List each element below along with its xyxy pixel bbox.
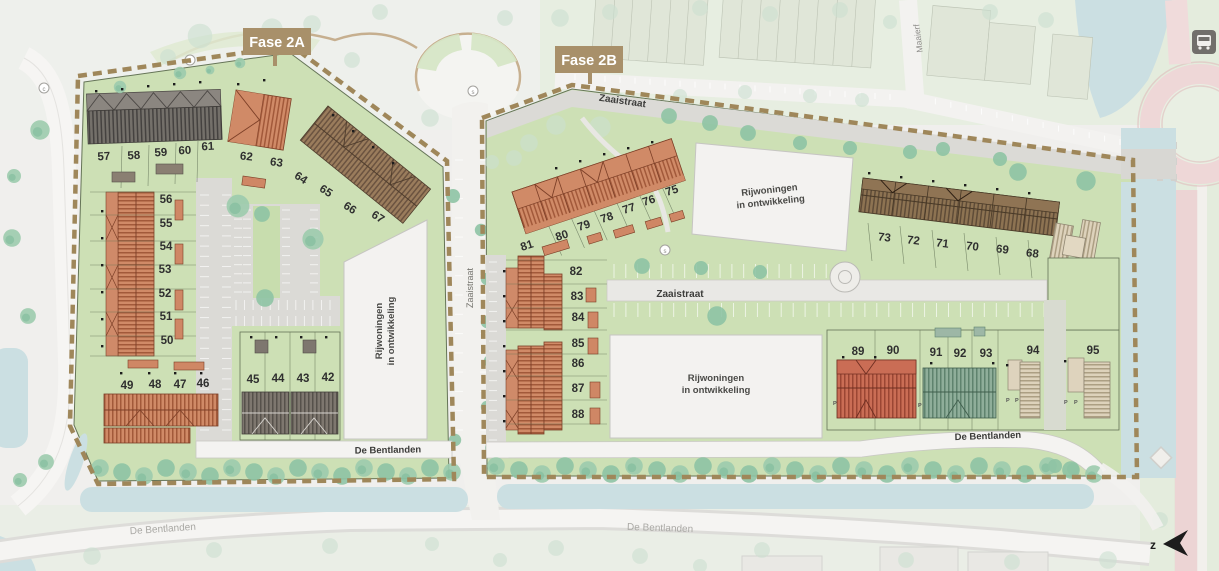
svg-text:P: P <box>1015 398 1019 404</box>
svg-text:in ontwikkeling: in ontwikkeling <box>682 385 751 396</box>
svg-text:90: 90 <box>887 345 900 357</box>
svg-text:95: 95 <box>1087 345 1100 357</box>
svg-text:44: 44 <box>272 373 285 385</box>
svg-text:in ontwikkeling: in ontwikkeling <box>386 297 397 366</box>
svg-text:82: 82 <box>570 266 583 278</box>
svg-text:c: c <box>43 87 46 93</box>
svg-text:55: 55 <box>160 218 173 230</box>
svg-text:84: 84 <box>572 312 585 324</box>
svg-text:De Bentlanden: De Bentlanden <box>355 444 422 456</box>
svg-text:Zaaistraat: Zaaistraat <box>465 267 475 308</box>
svg-text:88: 88 <box>572 409 585 421</box>
svg-text:58: 58 <box>127 150 141 163</box>
svg-text:56: 56 <box>160 194 173 206</box>
svg-text:De Bentlanden: De Bentlanden <box>627 522 694 535</box>
svg-text:P: P <box>1064 400 1068 406</box>
svg-text:92: 92 <box>954 348 967 360</box>
svg-text:Fase 2B: Fase 2B <box>561 53 617 69</box>
svg-text:86: 86 <box>572 358 585 370</box>
svg-text:Rijwoningen: Rijwoningen <box>688 373 745 384</box>
svg-text:73: 73 <box>877 231 891 244</box>
svg-text:50: 50 <box>161 335 174 347</box>
svg-text:P: P <box>918 403 922 409</box>
svg-text:60: 60 <box>178 145 191 158</box>
svg-text:De Bentlanden: De Bentlanden <box>954 430 1021 443</box>
svg-text:57: 57 <box>97 151 110 164</box>
svg-text:72: 72 <box>906 234 920 247</box>
svg-text:Rijwoningen: Rijwoningen <box>374 303 385 360</box>
svg-text:70: 70 <box>965 240 979 253</box>
svg-text:87: 87 <box>572 383 585 395</box>
svg-text:48: 48 <box>149 379 162 391</box>
svg-text:Zaaistraat: Zaaistraat <box>656 289 704 300</box>
svg-text:Fase 2A: Fase 2A <box>249 35 305 51</box>
svg-text:52: 52 <box>159 288 172 300</box>
svg-text:94: 94 <box>1027 345 1040 357</box>
svg-text:62: 62 <box>239 150 253 163</box>
svg-text:P: P <box>1074 400 1078 406</box>
svg-text:s: s <box>664 249 667 255</box>
svg-text:45: 45 <box>247 374 260 386</box>
svg-text:P: P <box>1006 398 1010 404</box>
svg-text:42: 42 <box>322 372 335 384</box>
svg-text:53: 53 <box>159 264 172 276</box>
svg-text:P: P <box>833 401 837 407</box>
svg-text:71: 71 <box>935 237 950 251</box>
svg-text:46: 46 <box>197 378 210 390</box>
svg-text:61: 61 <box>201 141 215 154</box>
svg-text:85: 85 <box>572 338 585 350</box>
svg-text:54: 54 <box>160 241 173 253</box>
svg-text:93: 93 <box>980 348 993 360</box>
svg-text:68: 68 <box>1025 247 1040 261</box>
svg-text:83: 83 <box>571 291 584 303</box>
svg-text:59: 59 <box>154 147 167 160</box>
svg-text:z: z <box>1150 538 1156 552</box>
svg-text:51: 51 <box>160 311 173 323</box>
svg-text:49: 49 <box>121 380 134 392</box>
svg-text:63: 63 <box>269 156 283 170</box>
svg-text:91: 91 <box>930 347 943 359</box>
svg-text:47: 47 <box>174 379 187 391</box>
svg-text:s: s <box>472 90 475 96</box>
svg-text:43: 43 <box>297 373 310 385</box>
svg-text:89: 89 <box>852 346 865 358</box>
